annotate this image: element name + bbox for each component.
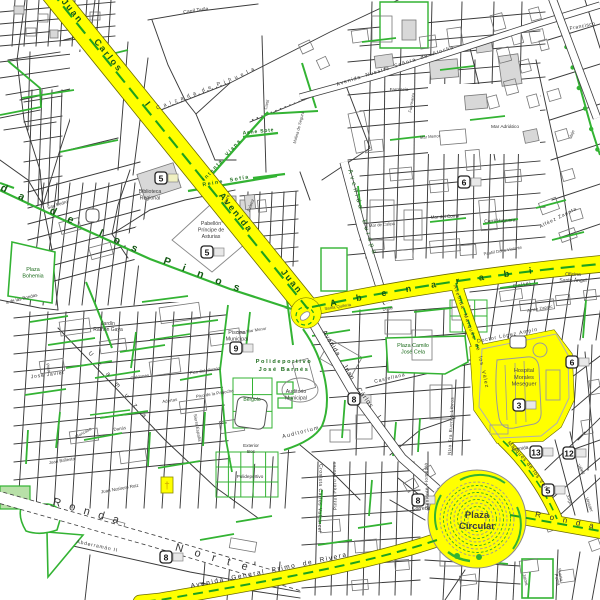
svg-text:Príncipe de: Príncipe de xyxy=(198,227,224,233)
svg-text:5: 5 xyxy=(205,248,210,258)
svg-text:Plaza: Plaza xyxy=(465,510,490,521)
svg-text:Bohemia: Bohemia xyxy=(22,274,43,280)
svg-text:Pabellón: Pabellón xyxy=(201,221,221,227)
svg-text:Municipal: Municipal xyxy=(226,337,249,343)
svg-text:Santo Ángel: Santo Ángel xyxy=(559,277,586,284)
svg-text:Plaza: Plaza xyxy=(26,267,40,273)
svg-text:Biblioteca: Biblioteca xyxy=(139,189,162,195)
svg-text:9: 9 xyxy=(234,344,239,354)
svg-text:Bos: Bos xyxy=(247,449,256,454)
svg-text:Correos: Correos xyxy=(412,506,431,512)
svg-text:Meseguer: Meseguer xyxy=(512,382,537,388)
svg-text:Morales: Morales xyxy=(514,375,534,381)
svg-text:Polideportivo: Polideportivo xyxy=(237,474,264,479)
svg-text:Regional: Regional xyxy=(140,195,160,201)
svg-text:Municipal: Municipal xyxy=(285,395,307,401)
svg-text:Jardín: Jardín xyxy=(101,321,115,327)
svg-text:3: 3 xyxy=(517,401,522,411)
svg-text:Circular: Circular xyxy=(459,521,495,532)
svg-text:8: 8 xyxy=(164,553,169,563)
svg-text:12: 12 xyxy=(564,449,574,459)
svg-text:8: 8 xyxy=(352,395,357,405)
svg-text:Ramón Gaya: Ramón Gaya xyxy=(93,327,123,333)
svg-text:Polideportivo: Polideportivo xyxy=(256,359,313,365)
svg-text:Exterior: Exterior xyxy=(243,443,259,448)
svg-text:José Cela: José Cela xyxy=(401,350,425,356)
svg-text:Oficina: Oficina xyxy=(565,272,581,278)
svg-text:Auditorio: Auditorio xyxy=(286,389,307,395)
svg-text:Mar Adriático: Mar Adriático xyxy=(491,124,519,130)
svg-text:Bérgolo: Bérgolo xyxy=(243,397,260,403)
svg-text:5: 5 xyxy=(159,174,164,184)
svg-text:13: 13 xyxy=(531,448,541,458)
svg-text:6: 6 xyxy=(570,358,575,368)
svg-text:6: 6 xyxy=(462,178,467,188)
svg-text:Asturias: Asturias xyxy=(202,234,221,240)
svg-text:Farmacia: Farmacia xyxy=(390,87,409,92)
svg-text:†: † xyxy=(164,481,170,492)
svg-text:8: 8 xyxy=(416,496,421,506)
svg-text:Hospital: Hospital xyxy=(514,368,534,374)
svg-text:Plaza Camilo: Plaza Camilo xyxy=(397,343,429,349)
svg-text:José Barnés: José Barnés xyxy=(259,367,310,373)
